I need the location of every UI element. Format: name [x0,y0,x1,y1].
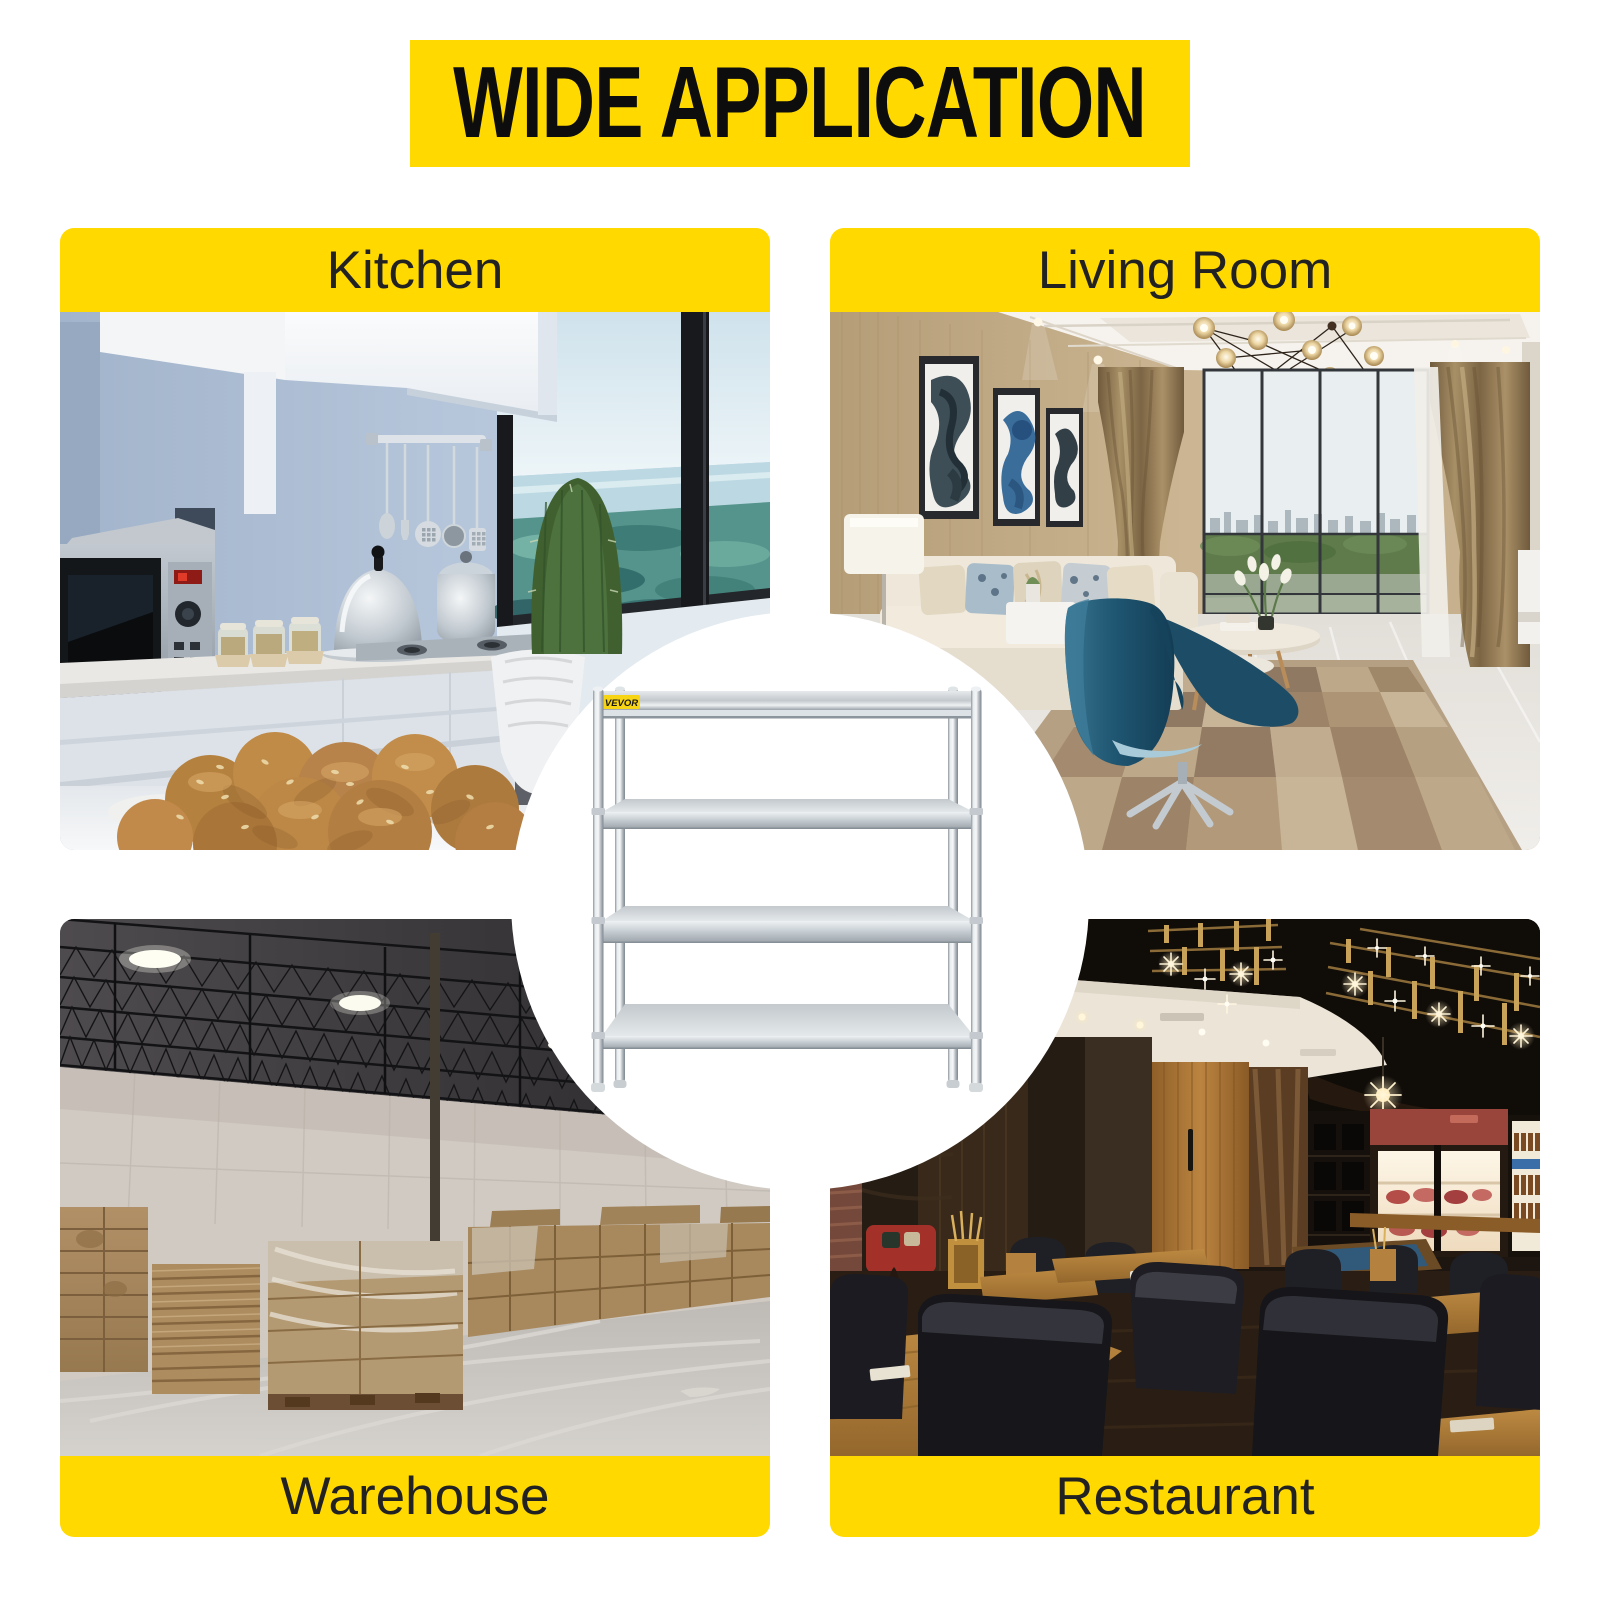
svg-text:VEVOR: VEVOR [605,698,638,709]
